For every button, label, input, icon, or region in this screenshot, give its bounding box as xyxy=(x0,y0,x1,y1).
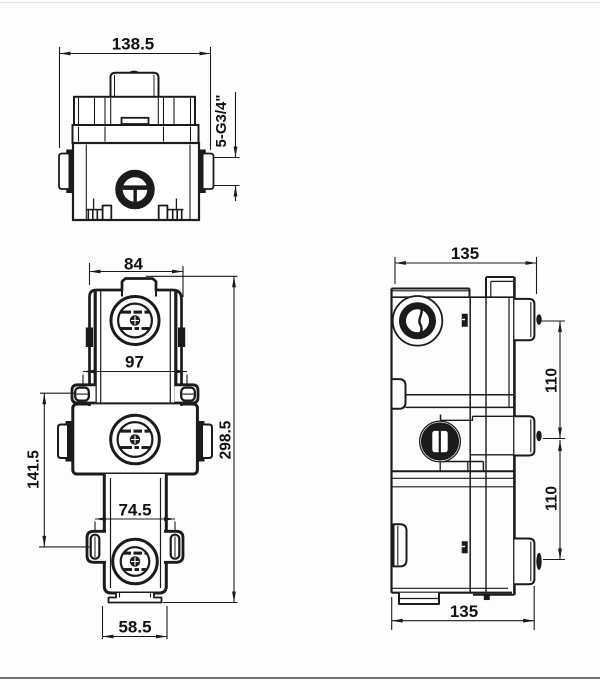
svg-text:74.5: 74.5 xyxy=(118,501,151,520)
svg-text:141.5: 141.5 xyxy=(26,450,43,489)
svg-text:135: 135 xyxy=(450,602,478,621)
svg-text:110: 110 xyxy=(544,486,561,511)
svg-text:5-G3/4": 5-G3/4" xyxy=(213,95,230,148)
svg-text:84: 84 xyxy=(124,255,143,274)
svg-text:138.5: 138.5 xyxy=(112,35,155,54)
svg-text:110: 110 xyxy=(544,368,561,393)
svg-text:298.5: 298.5 xyxy=(218,420,235,459)
svg-text:58.5: 58.5 xyxy=(118,618,151,637)
svg-text:135: 135 xyxy=(451,244,479,263)
svg-text:97: 97 xyxy=(125,353,144,372)
